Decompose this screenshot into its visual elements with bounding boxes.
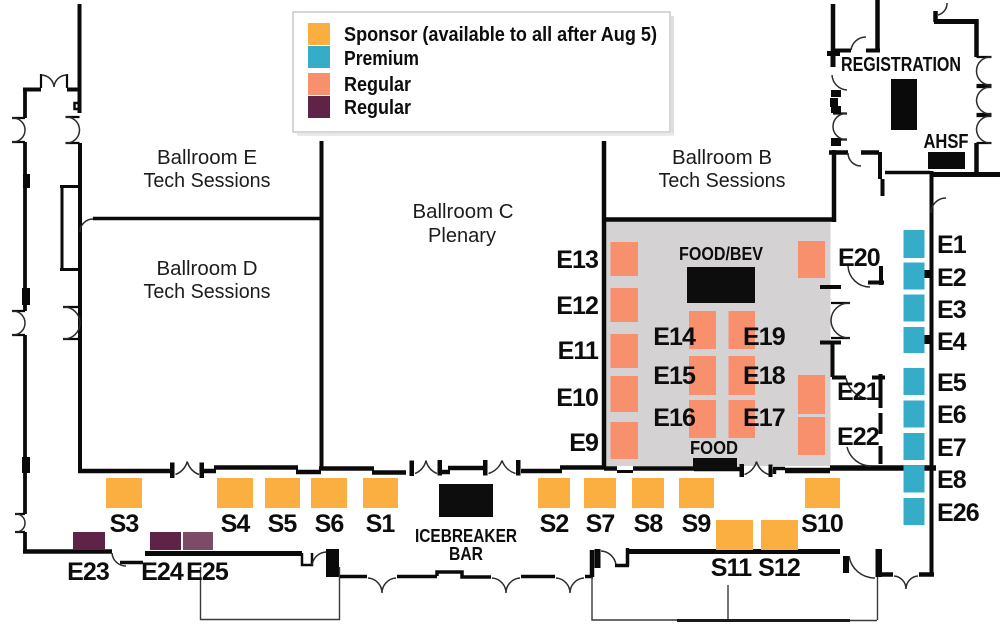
svg-text:E4: E4	[937, 328, 967, 356]
svg-text:E15: E15	[653, 362, 696, 390]
svg-text:E5: E5	[937, 369, 967, 397]
svg-text:S8: S8	[634, 510, 664, 538]
svg-text:FOOD/BEV: FOOD/BEV	[679, 244, 763, 264]
svg-text:E12: E12	[556, 292, 598, 320]
svg-text:E1: E1	[937, 231, 967, 259]
svg-text:Ballroom D: Ballroom D	[157, 258, 258, 280]
svg-text:E25: E25	[186, 558, 229, 586]
svg-text:S6: S6	[315, 510, 344, 538]
svg-text:S10: S10	[801, 510, 843, 538]
svg-text:E19: E19	[743, 323, 785, 351]
svg-text:Regular: Regular	[344, 74, 411, 96]
svg-text:E14: E14	[653, 323, 696, 351]
svg-text:E18: E18	[743, 362, 786, 390]
svg-text:ICEBREAKER: ICEBREAKER	[415, 526, 517, 546]
svg-text:E13: E13	[556, 246, 598, 274]
svg-text:E17: E17	[743, 404, 785, 432]
svg-text:Ballroom C: Ballroom C	[413, 201, 514, 223]
svg-text:S2: S2	[540, 510, 569, 538]
svg-text:E8: E8	[937, 466, 967, 494]
svg-text:Tech Sessions: Tech Sessions	[144, 170, 271, 192]
svg-text:S11: S11	[711, 554, 752, 582]
svg-text:E3: E3	[937, 296, 966, 324]
svg-text:Tech Sessions: Tech Sessions	[144, 281, 271, 303]
svg-text:AHSF: AHSF	[924, 131, 969, 153]
svg-text:S3: S3	[110, 510, 139, 538]
svg-text:S1: S1	[366, 510, 396, 538]
svg-text:S5: S5	[268, 510, 298, 538]
svg-text:REGISTRATION: REGISTRATION	[841, 54, 961, 76]
svg-text:E23: E23	[67, 558, 109, 586]
svg-text:Plenary: Plenary	[428, 225, 496, 247]
svg-text:E7: E7	[937, 434, 966, 462]
svg-text:S12: S12	[758, 554, 800, 582]
svg-text:E11: E11	[558, 337, 599, 365]
svg-text:E22: E22	[837, 423, 879, 451]
svg-text:Tech Sessions: Tech Sessions	[659, 170, 786, 192]
svg-text:Premium: Premium	[344, 48, 419, 70]
svg-text:E26: E26	[937, 499, 979, 527]
svg-text:Ballroom B: Ballroom B	[672, 147, 772, 169]
svg-text:E10: E10	[556, 384, 598, 412]
svg-text:E24: E24	[141, 558, 184, 586]
svg-text:Sponsor (available to all afte: Sponsor (available to all after Aug 5)	[344, 24, 657, 46]
svg-text:FOOD: FOOD	[690, 438, 738, 458]
svg-text:Ballroom E: Ballroom E	[157, 147, 257, 169]
svg-text:E21: E21	[837, 378, 880, 406]
svg-text:S9: S9	[682, 510, 711, 538]
svg-text:E2: E2	[937, 264, 966, 292]
svg-text:S7: S7	[586, 510, 615, 538]
svg-text:E6: E6	[937, 401, 966, 429]
svg-text:BAR: BAR	[449, 544, 483, 564]
svg-text:E16: E16	[653, 404, 695, 432]
svg-text:S4: S4	[221, 510, 251, 538]
svg-text:E9: E9	[569, 429, 598, 457]
svg-text:E20: E20	[838, 244, 880, 272]
svg-text:Regular: Regular	[344, 97, 411, 119]
